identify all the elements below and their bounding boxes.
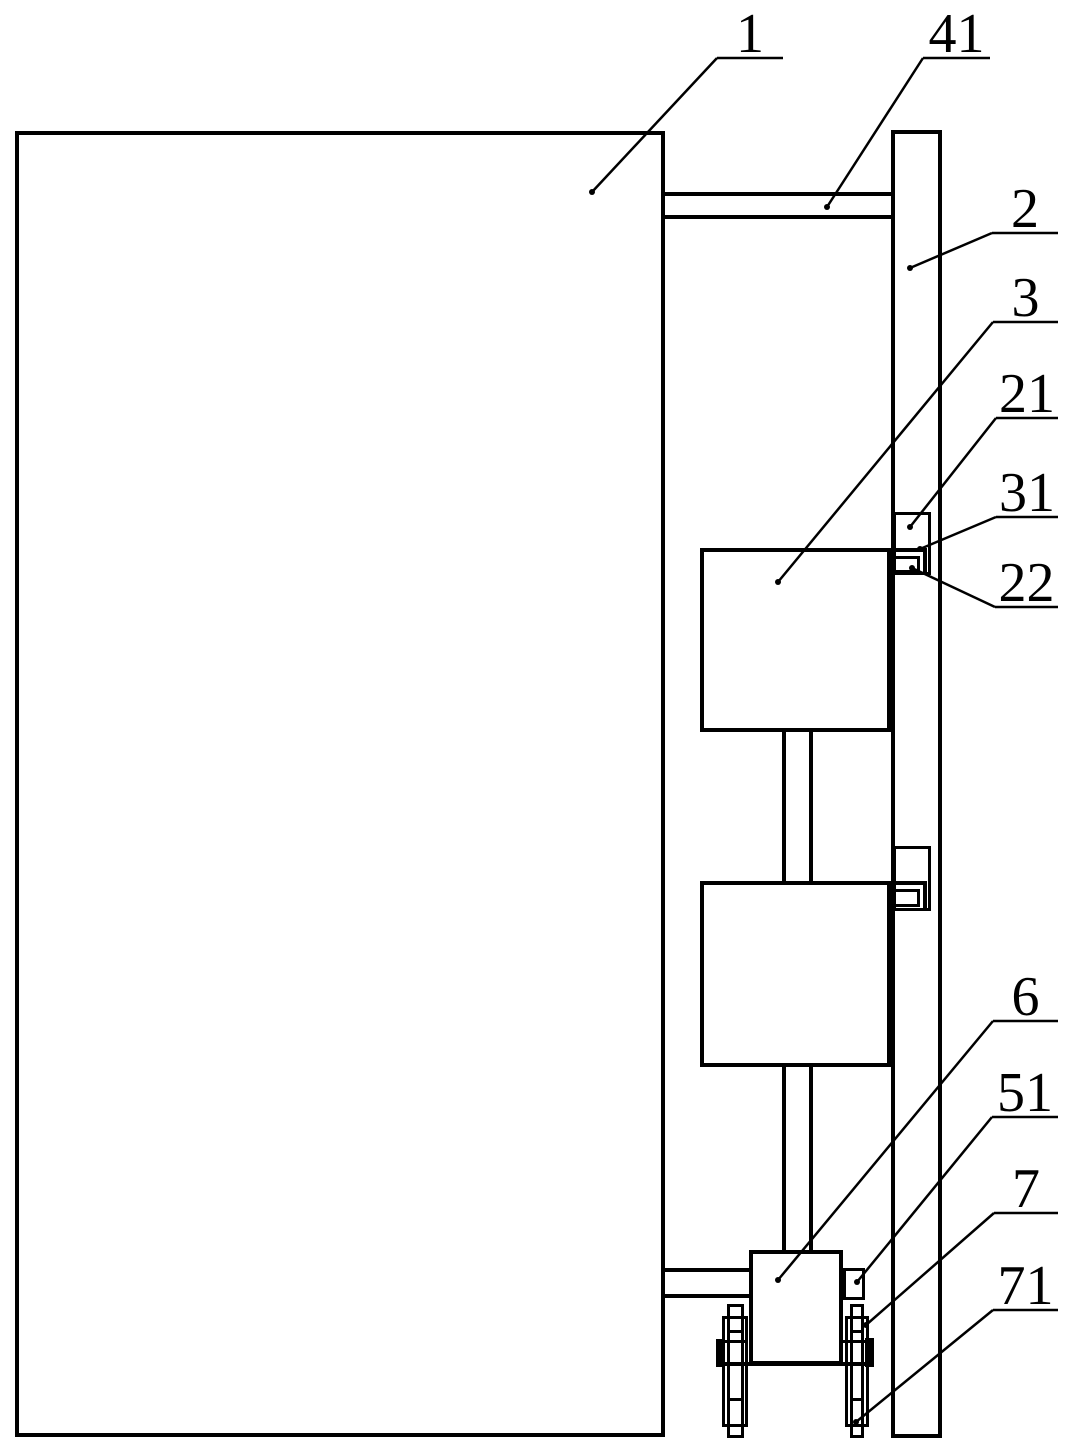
slide-tongue-upper [887, 548, 927, 552]
callout-label-2: 2 [992, 181, 1058, 237]
slide-tongue-lower [887, 881, 927, 885]
callout-label-22: 22 [995, 555, 1058, 611]
drive-block [749, 1250, 843, 1365]
callout-label-7: 7 [994, 1161, 1058, 1217]
connecting-shaft-lower [782, 1067, 813, 1252]
bottom-link-bar [663, 1268, 749, 1298]
callout-label-3: 3 [993, 270, 1058, 326]
axle-clamp-right [865, 1338, 874, 1367]
slide-tongue-lower-leg [923, 881, 927, 908]
callout-label-51: 51 [992, 1065, 1058, 1121]
main-panel [15, 131, 665, 1437]
slot-inner-block-lower [893, 889, 920, 907]
left-wheel [727, 1304, 744, 1438]
callout-label-41: 41 [923, 6, 990, 62]
callout-label-1: 1 [717, 6, 783, 62]
vertical-rail [891, 130, 942, 1438]
callout-label-71: 71 [993, 1258, 1058, 1314]
side-lug [843, 1268, 865, 1300]
right-wheel [850, 1304, 864, 1438]
callout-label-21: 21 [996, 366, 1058, 422]
callout-label-31: 31 [996, 465, 1058, 521]
callout-label-6: 6 [993, 969, 1058, 1025]
top-link-bar [663, 192, 891, 219]
slide-tongue-upper-leg [923, 548, 927, 572]
middle-slide-block [700, 881, 891, 1067]
patent-figure-canvas: 1 41 2 3 21 31 22 6 51 7 71 [0, 0, 1072, 1454]
upper-slide-block [700, 548, 891, 732]
slot-inner-block-upper [893, 556, 920, 573]
connecting-shaft-upper [782, 732, 813, 883]
left-wheel-rim-line-top [727, 1330, 744, 1333]
axle-bar [716, 1362, 874, 1366]
axle-clamp-left [716, 1339, 725, 1367]
right-wheel-rim-line-bottom [850, 1398, 864, 1401]
right-wheel-rim-line-top [850, 1330, 864, 1333]
left-wheel-rim-line-bottom [727, 1398, 744, 1401]
